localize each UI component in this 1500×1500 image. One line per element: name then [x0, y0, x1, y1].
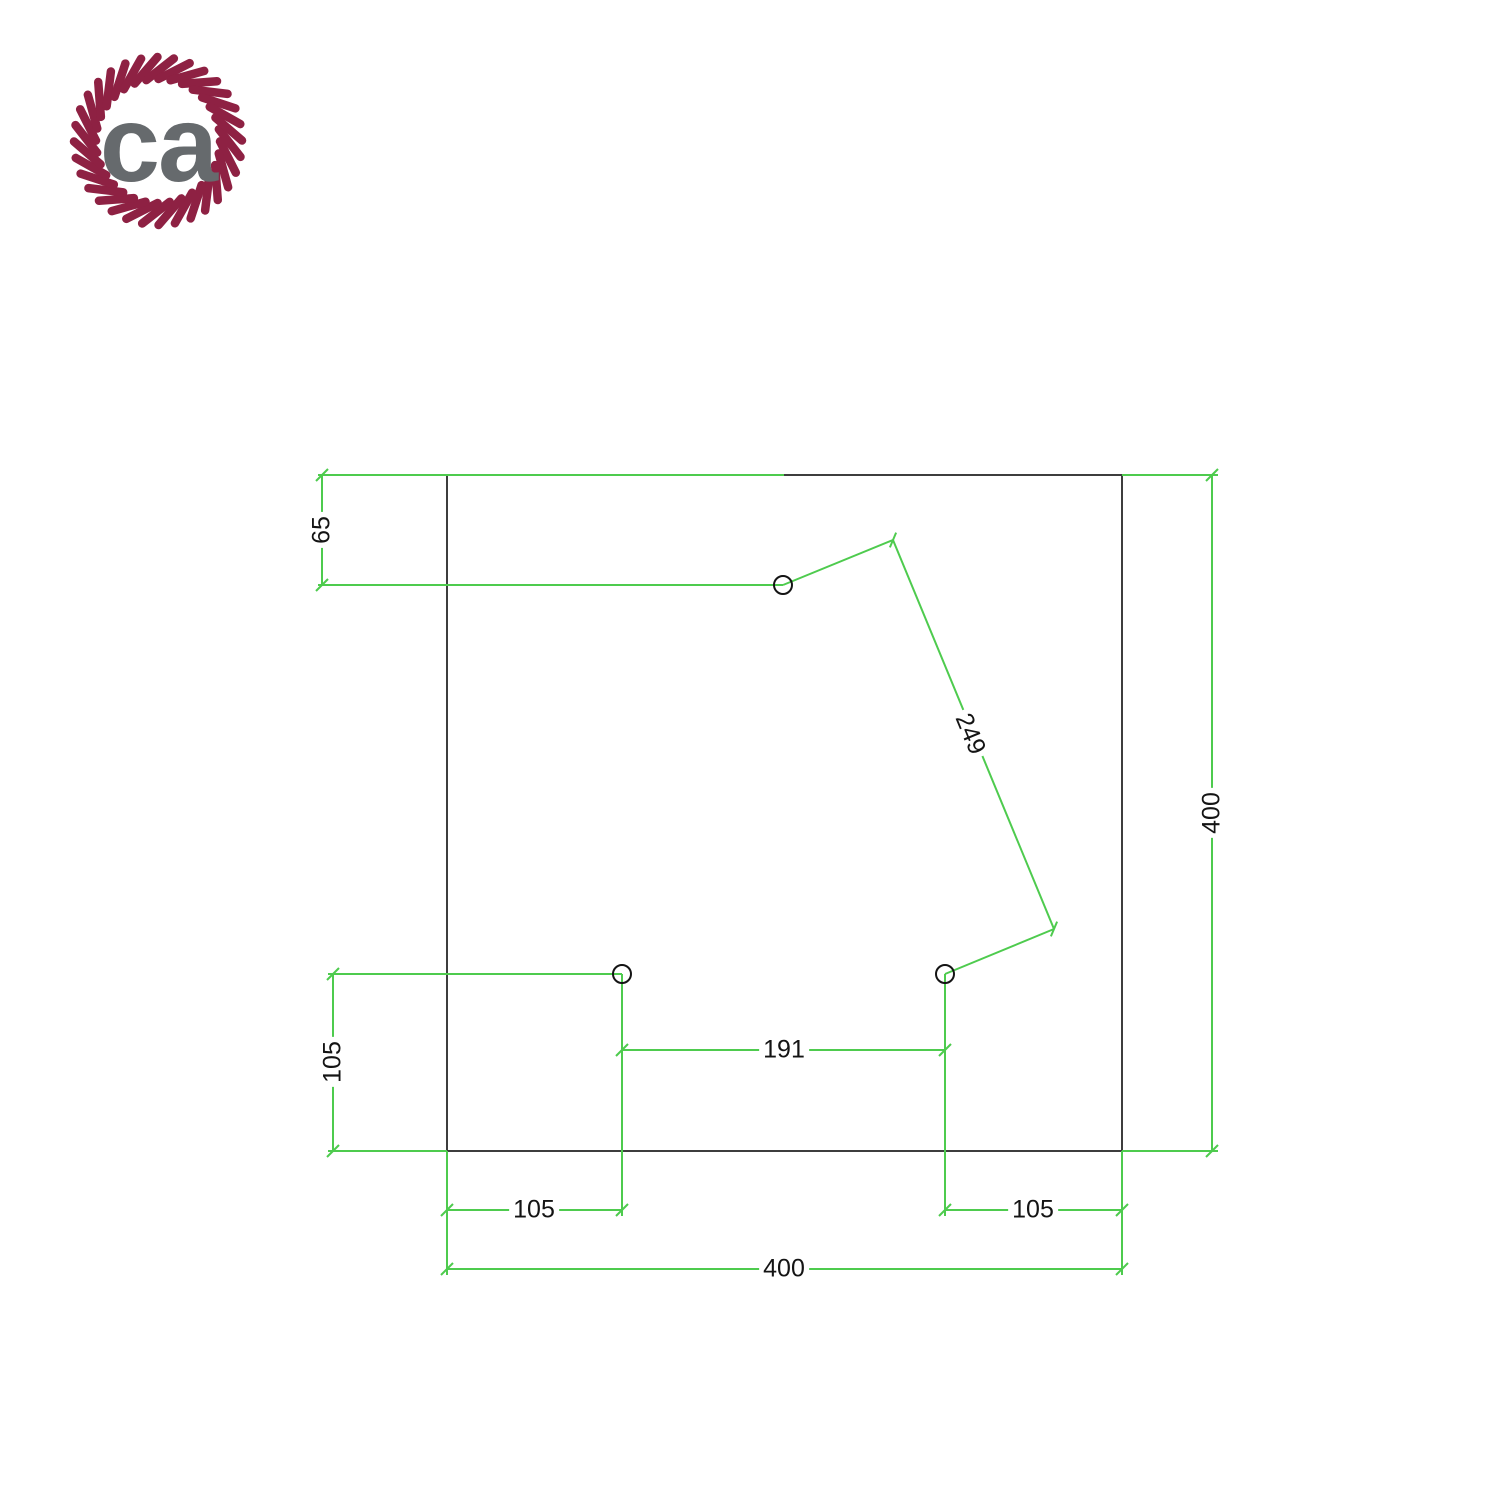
- technical-drawing: [0, 0, 1500, 1500]
- dim-65-label: 65: [308, 512, 337, 548]
- holes: [613, 576, 954, 983]
- ext-249-start: [783, 540, 893, 585]
- dim-400-bottom-label: 400: [759, 1255, 809, 1284]
- drawing-canvas: ca: [0, 0, 1500, 1500]
- dimension-lines: [316, 469, 1218, 1275]
- dim-191-label: 191: [759, 1036, 809, 1065]
- dim-105-bottom-left-label: 105: [509, 1196, 559, 1225]
- dim-105-left-label: 105: [319, 1037, 348, 1087]
- ext-249-end: [945, 929, 1054, 974]
- dim-105-bottom-right-label: 105: [1008, 1196, 1058, 1225]
- dim-400-right-label: 400: [1198, 788, 1227, 838]
